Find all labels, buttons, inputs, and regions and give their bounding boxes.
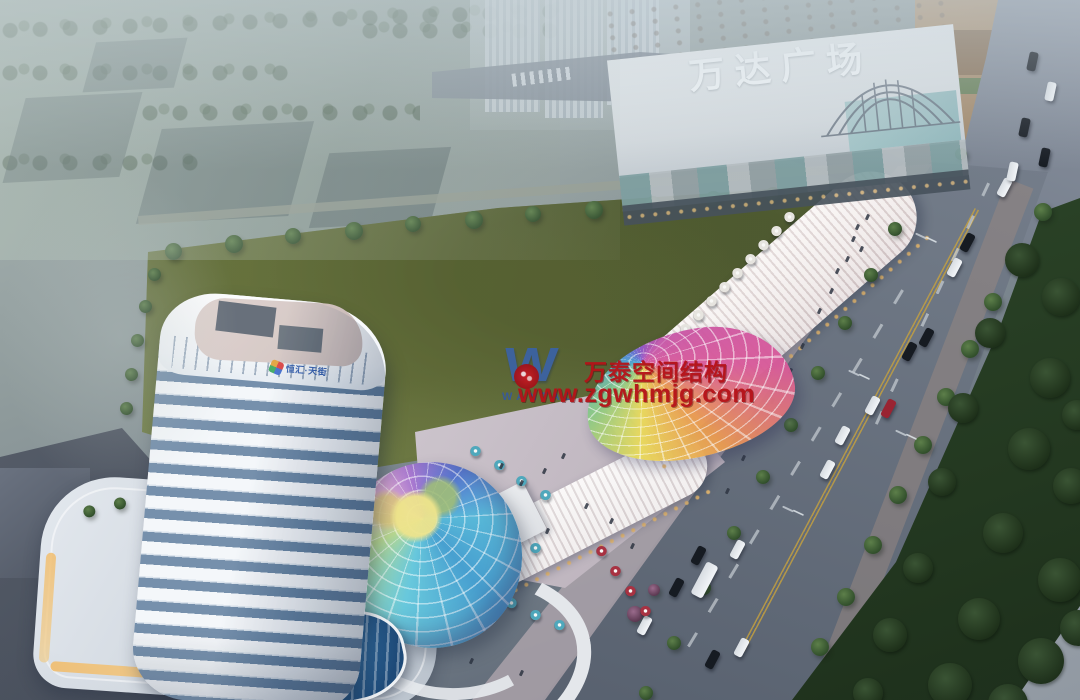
architectural-rendering: 万达广场 xyxy=(0,0,1080,700)
watermark: W WANTAO 万泰空间结构 www.zgwhmjg.com xyxy=(498,344,748,420)
watermark-website: www.zgwhmjg.com xyxy=(518,380,755,409)
